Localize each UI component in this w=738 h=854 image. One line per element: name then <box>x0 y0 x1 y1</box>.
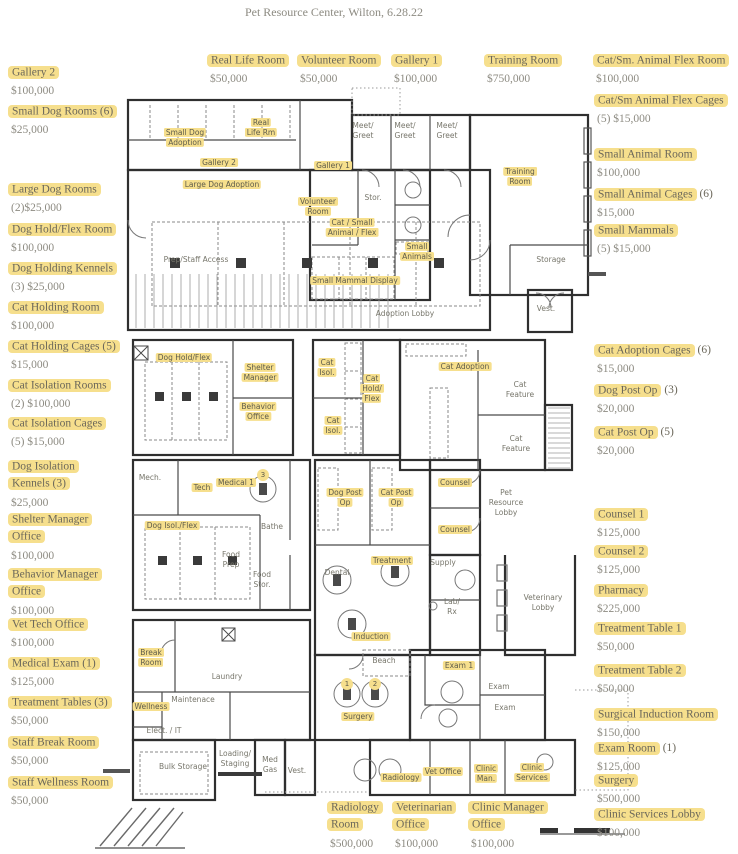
plan-label-dental: Dental <box>325 568 350 578</box>
callout-price: $100,000 <box>8 635 88 653</box>
plan-label-text: Induction <box>352 632 391 641</box>
plan-label-cat-small-animal-flex: Cat / Small Animal / Flex <box>326 218 379 238</box>
callout-price: $500,000 <box>327 836 399 854</box>
callout-dog-isolation-kennels-3: Dog Isolation Kennels (3)$25,000 <box>8 458 103 512</box>
plan-label-text: Storage <box>536 255 565 264</box>
plan-label-text: Radiology <box>381 773 422 782</box>
callout-room-name: Gallery 2 <box>8 66 59 79</box>
plan-label-food-stor: Food Stor. <box>253 570 271 590</box>
callout-room-name: Staff Wellness Room <box>8 776 113 789</box>
callout-room-name: Dog Holding Kennels <box>8 262 117 275</box>
plan-label-gallery-1: Gallery 1 <box>314 161 352 171</box>
floor-plan-page: Pet Resource Center, Wilton, 6.28.22 <box>0 0 738 854</box>
plan-label-vest: Vest. <box>537 304 555 314</box>
callout-small-animal-cages: Small Animal Cages (6)$15,000 <box>594 186 713 223</box>
callout-room-name: Small Animal Cages <box>594 188 697 201</box>
plan-label-text: Meet/ Greet <box>436 121 457 140</box>
plan-label-supply: Supply <box>430 558 456 568</box>
plan-label-med-gas: Med Gas <box>262 755 278 775</box>
callout-room-count: (1) <box>663 742 676 754</box>
plan-label-meet-greet: Meet/ Greet <box>436 121 457 141</box>
callout-price: $100,000 <box>8 548 118 566</box>
callout-room-name: Small Dog Rooms (6) <box>8 105 117 118</box>
callout-room-name: Clinic Manager Office <box>468 801 548 832</box>
callout-room-name: Counsel 1 <box>594 508 648 521</box>
callout-cat-post-op: Cat Post Op (5)$20,000 <box>594 424 674 461</box>
plan-label-exam-1: Exam 1 <box>443 661 475 671</box>
callout-price: $50,000 <box>594 639 686 657</box>
callout-room-count: (6) <box>698 344 711 356</box>
callout-price: $25,000 <box>8 495 103 513</box>
callout-dog-post-op: Dog Post Op (3)$20,000 <box>594 382 678 419</box>
plan-label-text: Lab/ Rx <box>444 597 460 616</box>
plan-label-shelter-manager: Shelter Manager <box>242 363 279 383</box>
plan-label-wellness: Wellness <box>133 702 170 712</box>
callout-large-dog-rooms: Large Dog Rooms(2)$25,000 <box>8 181 101 218</box>
dotted-lines <box>265 88 628 792</box>
callout-room-name: Dog Post Op <box>594 384 661 397</box>
callout-cat-isolation-cages: Cat Isolation Cages(5) $15,000 <box>8 415 106 452</box>
plan-label-text: Behavior Office <box>239 402 276 421</box>
plan-label-text: Veterinary Lobby <box>524 593 563 612</box>
callout-room-name: Large Dog Rooms <box>8 183 101 196</box>
callout-surgical-induction-room: Surgical Induction Room$150,000 <box>594 706 718 743</box>
plan-label-clinic-man: Clinic Man. <box>474 764 498 784</box>
callout-price: (2) $100,000 <box>8 396 111 414</box>
plan-label-text: Cat Isol. <box>317 358 336 377</box>
callout-price: (3) $25,000 <box>8 279 117 297</box>
callout-room-name: Gallery 1 <box>391 54 442 67</box>
plan-marker-3: 3 <box>257 469 269 481</box>
plan-marker-2: 2 <box>369 678 381 690</box>
callout-treatment-tables-3: Treatment Tables (3)$50,000 <box>8 694 112 731</box>
callout-small-animal-room: Small Animal Room$100,000 <box>594 146 697 183</box>
plan-label-text: Exam <box>494 703 515 712</box>
plan-label-text: Dog Post Op <box>326 488 363 507</box>
plan-label-real-life-rm: Real Life Rm <box>245 118 277 138</box>
plan-label-text: Meet/ Greet <box>352 121 373 140</box>
callout-price: $100,000 <box>594 165 697 183</box>
plan-label-dog-isol-flex: Dog Isol./Flex <box>145 521 200 531</box>
callout-price: $100,000 <box>468 836 573 854</box>
plan-label-text: Laundry <box>212 672 243 681</box>
callout-cat-holding-room: Cat Holding Room$100,000 <box>8 299 104 336</box>
plan-label-radiology: Radiology <box>381 773 422 783</box>
plan-label-cat-hold-flex: Cat Hold/ Flex <box>360 374 384 404</box>
plan-label-text: Wellness <box>133 702 170 711</box>
plan-label-prep-staff-access: Prep/Staff Access <box>164 255 229 265</box>
plan-label-exam: Exam <box>494 703 515 713</box>
callout-price: $50,000 <box>8 793 113 811</box>
plan-label-counsel: Counsel <box>438 478 472 488</box>
callout-price: $15,000 <box>594 205 713 223</box>
plan-label-training-room: Training Room <box>503 167 537 187</box>
callout-room-name: Veterinarian Office <box>392 801 456 832</box>
plan-label-text: Gallery 1 <box>314 161 352 170</box>
callout-price: $125,000 <box>594 562 648 580</box>
plan-label-text: Cat Isol. <box>323 416 342 435</box>
plan-label-cat-adoption: Cat Adoption <box>439 362 492 372</box>
callout-price: $225,000 <box>594 601 648 619</box>
callout-staff-break-room: Staff Break Room$50,000 <box>8 734 99 771</box>
plan-label-text: Surgery <box>341 712 374 721</box>
callout-price: $125,000 <box>8 674 100 692</box>
callout-price: $20,000 <box>594 401 678 419</box>
plan-label-text: Medical 1 <box>216 478 256 487</box>
plan-label-text: Small Dog Adoption <box>164 128 206 147</box>
entry-ramp <box>95 808 185 848</box>
callout-price: (5) $15,000 <box>8 434 106 452</box>
callout-cat-isolation-rooms: Cat Isolation Rooms(2) $100,000 <box>8 377 111 414</box>
plan-label-text: Cat Feature <box>502 434 530 453</box>
plan-label-vest: Vest. <box>288 766 306 776</box>
plan-label-behavior-office: Behavior Office <box>239 402 276 422</box>
callout-small-dog-rooms-6: Small Dog Rooms (6)$25,000 <box>8 103 117 140</box>
callout-real-life-room: Real Life Room$50,000 <box>207 52 289 89</box>
plan-label-bulk-storage: Bulk Storage <box>159 762 207 772</box>
plan-label-text: Food Prep <box>222 550 240 569</box>
callout-room-name: Radiology Room <box>327 801 383 832</box>
plan-label-text: Med Gas <box>262 755 278 774</box>
plan-label-text: Dental <box>325 568 350 577</box>
plan-label-text: Vest. <box>288 766 306 775</box>
callout-room-count: (5) <box>660 426 673 438</box>
callout-room-name: Volunteer Room <box>297 54 381 67</box>
callout-room-name: Cat/Sm Animal Flex Cages <box>594 94 728 107</box>
callout-room-name: Small Animal Room <box>594 148 697 161</box>
callout-gallery-2: Gallery 2$100,000 <box>8 64 59 101</box>
callout-price: $100,000 <box>594 825 705 843</box>
callout-cat-sm-animal-flex-room: Cat/Sm. Animal Flex Room$100,000 <box>593 52 729 89</box>
plan-label-text: Counsel <box>438 525 472 534</box>
callout-room-name: Vet Tech Office <box>8 618 88 631</box>
callout-price: $100,000 <box>391 71 442 89</box>
callout-price: $100,000 <box>8 318 104 336</box>
plan-label-text: Dog Hold/Flex <box>156 353 212 362</box>
callout-clinic-manager-office: Clinic Manager Office$100,000 <box>468 799 573 853</box>
plan-label-text: Real Life Rm <box>245 118 277 137</box>
callout-radiology-room: Radiology Room$500,000 <box>327 799 399 853</box>
plan-label-text: Cat / Small Animal / Flex <box>326 218 379 237</box>
callout-shelter-manager-office: Shelter Manager Office$100,000 <box>8 511 118 565</box>
plan-label-counsel: Counsel <box>438 525 472 535</box>
plan-label-text: Supply <box>430 558 456 567</box>
plan-label-cat-post-op: Cat Post Op <box>379 488 414 508</box>
plan-label-vet-office: Vet Office <box>423 767 463 777</box>
callout-price: $100,000 <box>8 240 116 258</box>
plan-label-elect-it: Elect. / IT <box>147 726 182 736</box>
callout-room-name: Training Room <box>484 54 562 67</box>
callout-room-name: Real Life Room <box>207 54 289 67</box>
callout-room-name: Cat Holding Room <box>8 301 104 314</box>
callout-counsel-1: Counsel 1$125,000 <box>594 506 648 543</box>
plan-label-laundry: Laundry <box>212 672 243 682</box>
callout-price: $20,000 <box>594 443 674 461</box>
plan-label-text: Vet Office <box>423 767 463 776</box>
plan-label-beach: Beach <box>372 656 395 666</box>
plan-label-text: Elect. / IT <box>147 726 182 735</box>
plan-label-adoption-lobby: Adoption Lobby <box>376 309 434 319</box>
plan-label-dog-post-op: Dog Post Op <box>326 488 363 508</box>
callout-volunteer-room: Volunteer Room$50,000 <box>297 52 381 89</box>
plan-label-small-animals: Small Animals <box>400 242 434 262</box>
plan-label-storage: Storage <box>536 255 565 265</box>
callout-treatment-table-2: Treatment Table 2$50,000 <box>594 662 686 699</box>
plan-label-clinic-services: Clinic Services <box>514 763 550 783</box>
callout-pharmacy: Pharmacy$225,000 <box>594 582 648 619</box>
plan-label-text: Tech <box>192 483 213 492</box>
callout-room-name: Clinic Services Lobby <box>594 808 705 821</box>
plan-label-text: Shelter Manager <box>242 363 279 382</box>
callout-room-name: Pharmacy <box>594 584 648 597</box>
plan-label-surgery: Surgery <box>341 712 374 722</box>
callout-price: $100,000 <box>8 83 59 101</box>
plan-label-exam: Exam <box>488 682 509 692</box>
plan-label-text: Stor. <box>364 193 381 202</box>
plan-label-text: Bathe <box>261 522 283 531</box>
plan-label-maintenace: Maintenace <box>171 695 215 705</box>
plan-label-small-dog-adoption: Small Dog Adoption <box>164 128 206 148</box>
plan-label-meet-greet: Meet/ Greet <box>394 121 415 141</box>
callout-vet-tech-office: Vet Tech Office$100,000 <box>8 616 88 653</box>
plan-label-text: Adoption Lobby <box>376 309 434 318</box>
callout-price: (2)$25,000 <box>8 200 101 218</box>
plan-label-large-dog-adoption: Large Dog Adoption <box>183 180 261 190</box>
plan-label-text: Exam <box>488 682 509 691</box>
callout-room-name: Behavior Manager Office <box>8 568 102 599</box>
callout-room-name: Small Mammals <box>594 224 678 237</box>
callout-price: (5) $15,000 <box>594 241 678 259</box>
plan-label-cat-isol: Cat Isol. <box>323 416 342 436</box>
plan-label-text: Small Mammal Display <box>310 276 400 285</box>
callout-room-name: Dog Hold/Flex Room <box>8 223 116 236</box>
plan-label-text: Treatment <box>371 556 413 565</box>
plan-label-text: Pet Resource Lobby <box>489 488 523 517</box>
plan-label-gallery-2: Gallery 2 <box>200 158 238 168</box>
plan-label-volunteer-room: Volunteer Room <box>298 197 338 217</box>
plan-label-text: Meet/ Greet <box>394 121 415 140</box>
callout-clinic-services-lobby: Clinic Services Lobby$100,000 <box>594 806 705 843</box>
plan-label-cat-feature: Cat Feature <box>506 380 534 400</box>
plan-label-text: Exam 1 <box>443 661 475 670</box>
callout-room-name: Treatment Table 1 <box>594 622 686 635</box>
plan-label-text: Mech. <box>139 473 161 482</box>
plan-label-text: Cat Hold/ Flex <box>360 374 384 403</box>
plan-label-text: Break Room <box>138 648 164 667</box>
plan-label-treatment: Treatment <box>371 556 413 566</box>
plan-label-cat-isol: Cat Isol. <box>317 358 336 378</box>
plan-label-stor: Stor. <box>364 193 381 203</box>
plan-label-veterinary-lobby: Veterinary Lobby <box>524 593 563 613</box>
plan-label-text: Counsel <box>438 478 472 487</box>
callout-price: $50,000 <box>594 681 686 699</box>
callout-price: $125,000 <box>594 525 648 543</box>
plan-label-text: Cat Post Op <box>379 488 414 507</box>
callout-staff-wellness-room: Staff Wellness Room$50,000 <box>8 774 113 811</box>
plan-label-bathe: Bathe <box>261 522 283 532</box>
callout-room-name: Shelter Manager Office <box>8 513 92 544</box>
plan-label-mech: Mech. <box>139 473 161 483</box>
callout-behavior-manager-office: Behavior Manager Office$100,000 <box>8 566 123 620</box>
plan-label-break-room: Break Room <box>138 648 164 668</box>
plan-label-text: Maintenace <box>171 695 215 704</box>
callout-price: $750,000 <box>484 71 562 89</box>
callout-dog-hold-flex-room: Dog Hold/Flex Room$100,000 <box>8 221 116 258</box>
callout-room-name: Surgical Induction Room <box>594 708 718 721</box>
callout-room-name: Counsel 2 <box>594 545 648 558</box>
callout-room-name: Dog Isolation Kennels (3) <box>8 460 79 491</box>
stairs <box>548 408 570 468</box>
plan-label-text: Cat Adoption <box>439 362 492 371</box>
callout-room-name: Cat Holding Cages (5) <box>8 340 120 353</box>
plan-label-text: Food Stor. <box>253 570 271 589</box>
plan-label-text: Gallery 2 <box>200 158 238 167</box>
plan-label-text: Vest. <box>537 304 555 313</box>
plan-label-food-prep: Food Prep <box>222 550 240 570</box>
plan-label-lab-rx: Lab/ Rx <box>444 597 460 617</box>
plan-label-text: Loading/ Staging <box>219 749 251 768</box>
callout-price: $50,000 <box>207 71 289 89</box>
callout-small-mammals: Small Mammals(5) $15,000 <box>594 222 678 259</box>
callout-room-name: Treatment Tables (3) <box>8 696 112 709</box>
plan-label-small-mammal-display: Small Mammal Display <box>310 276 400 286</box>
callout-price: (5) $15,000 <box>594 111 728 129</box>
plan-label-text: Volunteer Room <box>298 197 338 216</box>
callout-gallery-1: Gallery 1$100,000 <box>391 52 442 89</box>
callout-price: $100,000 <box>593 71 729 89</box>
callout-dog-holding-kennels: Dog Holding Kennels(3) $25,000 <box>8 260 117 297</box>
callout-room-name: Medical Exam (1) <box>8 657 100 670</box>
washer-xbox <box>134 346 235 641</box>
callout-price: $50,000 <box>8 753 99 771</box>
plan-marker-1: 1 <box>341 678 353 690</box>
callout-room-count: (6) <box>699 188 712 200</box>
callout-price: $50,000 <box>8 713 112 731</box>
callout-treatment-table-1: Treatment Table 1$50,000 <box>594 620 686 657</box>
callout-cat-holding-cages-5: Cat Holding Cages (5)$15,000 <box>8 338 120 375</box>
callout-room-name: Cat Isolation Rooms <box>8 379 111 392</box>
plan-label-tech: Tech <box>192 483 213 493</box>
callout-room-name: Cat Post Op <box>594 426 658 439</box>
callout-room-count: (3) <box>664 384 677 396</box>
plan-label-text: Small Animals <box>400 242 434 261</box>
callout-medical-exam-1: Medical Exam (1)$125,000 <box>8 655 100 692</box>
callout-room-name: Cat Adoption Cages <box>594 344 695 357</box>
callout-cat-sm-animal-flex-cages: Cat/Sm Animal Flex Cages(5) $15,000 <box>594 92 728 129</box>
callout-price: $50,000 <box>297 71 381 89</box>
plan-label-text: Beach <box>372 656 395 665</box>
plan-label-text: Cat Feature <box>506 380 534 399</box>
callout-training-room: Training Room$750,000 <box>484 52 562 89</box>
plan-label-dog-hold-flex: Dog Hold/Flex <box>156 353 212 363</box>
callout-surgery: Surgery$500,000 <box>594 772 640 809</box>
plan-label-induction: Induction <box>352 632 391 642</box>
plan-label-medical-1: Medical 1 <box>216 478 256 488</box>
plan-label-text: Clinic Services <box>514 763 550 782</box>
callout-room-name: Surgery <box>594 774 638 787</box>
callout-room-name: Staff Break Room <box>8 736 99 749</box>
plan-label-text: Clinic Man. <box>474 764 498 783</box>
callout-price: $25,000 <box>8 122 117 140</box>
plan-label-pet-resource-lobby: Pet Resource Lobby <box>489 488 523 518</box>
plan-label-text: Bulk Storage <box>159 762 207 771</box>
callout-room-name: Cat Isolation Cages <box>8 417 106 430</box>
callout-room-name: Cat/Sm. Animal Flex Room <box>593 54 729 67</box>
plan-label-meet-greet: Meet/ Greet <box>352 121 373 141</box>
plan-label-text: Large Dog Adoption <box>183 180 261 189</box>
callout-counsel-2: Counsel 2$125,000 <box>594 543 648 580</box>
plan-label-text: Prep/Staff Access <box>164 255 229 264</box>
plan-label-text: Dog Isol./Flex <box>145 521 200 530</box>
callout-price: $15,000 <box>594 361 711 379</box>
callout-room-name: Exam Room <box>594 742 660 755</box>
plan-label-text: Training Room <box>503 167 537 186</box>
callout-price: $15,000 <box>8 357 120 375</box>
plan-label-cat-feature: Cat Feature <box>502 434 530 454</box>
callout-cat-adoption-cages: Cat Adoption Cages (6)$15,000 <box>594 342 711 379</box>
plan-label-loading-staging: Loading/ Staging <box>219 749 251 769</box>
callout-room-name: Treatment Table 2 <box>594 664 686 677</box>
